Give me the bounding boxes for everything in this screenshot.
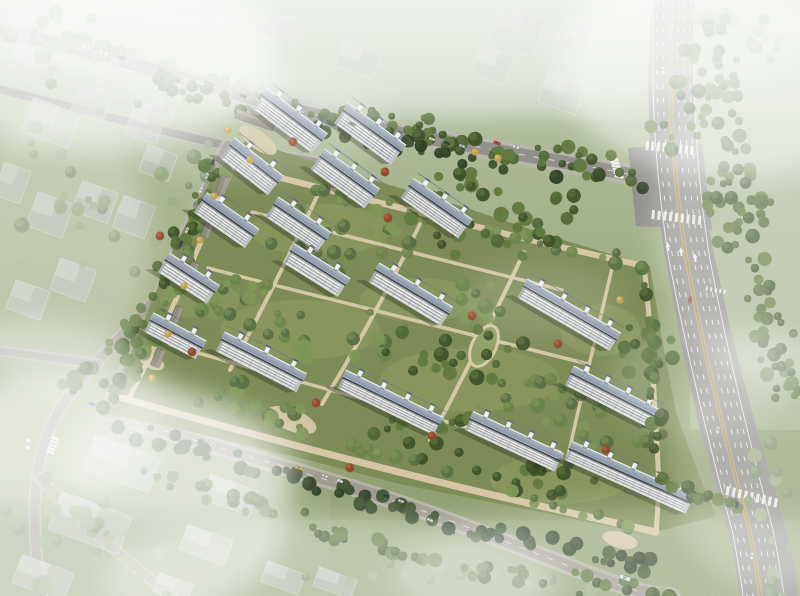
atmosphere-veil: [0, 0, 800, 596]
aerial-rendering-canvas: [0, 0, 800, 596]
haze-layer: [0, 0, 800, 596]
aerial-rendering: [0, 0, 800, 596]
